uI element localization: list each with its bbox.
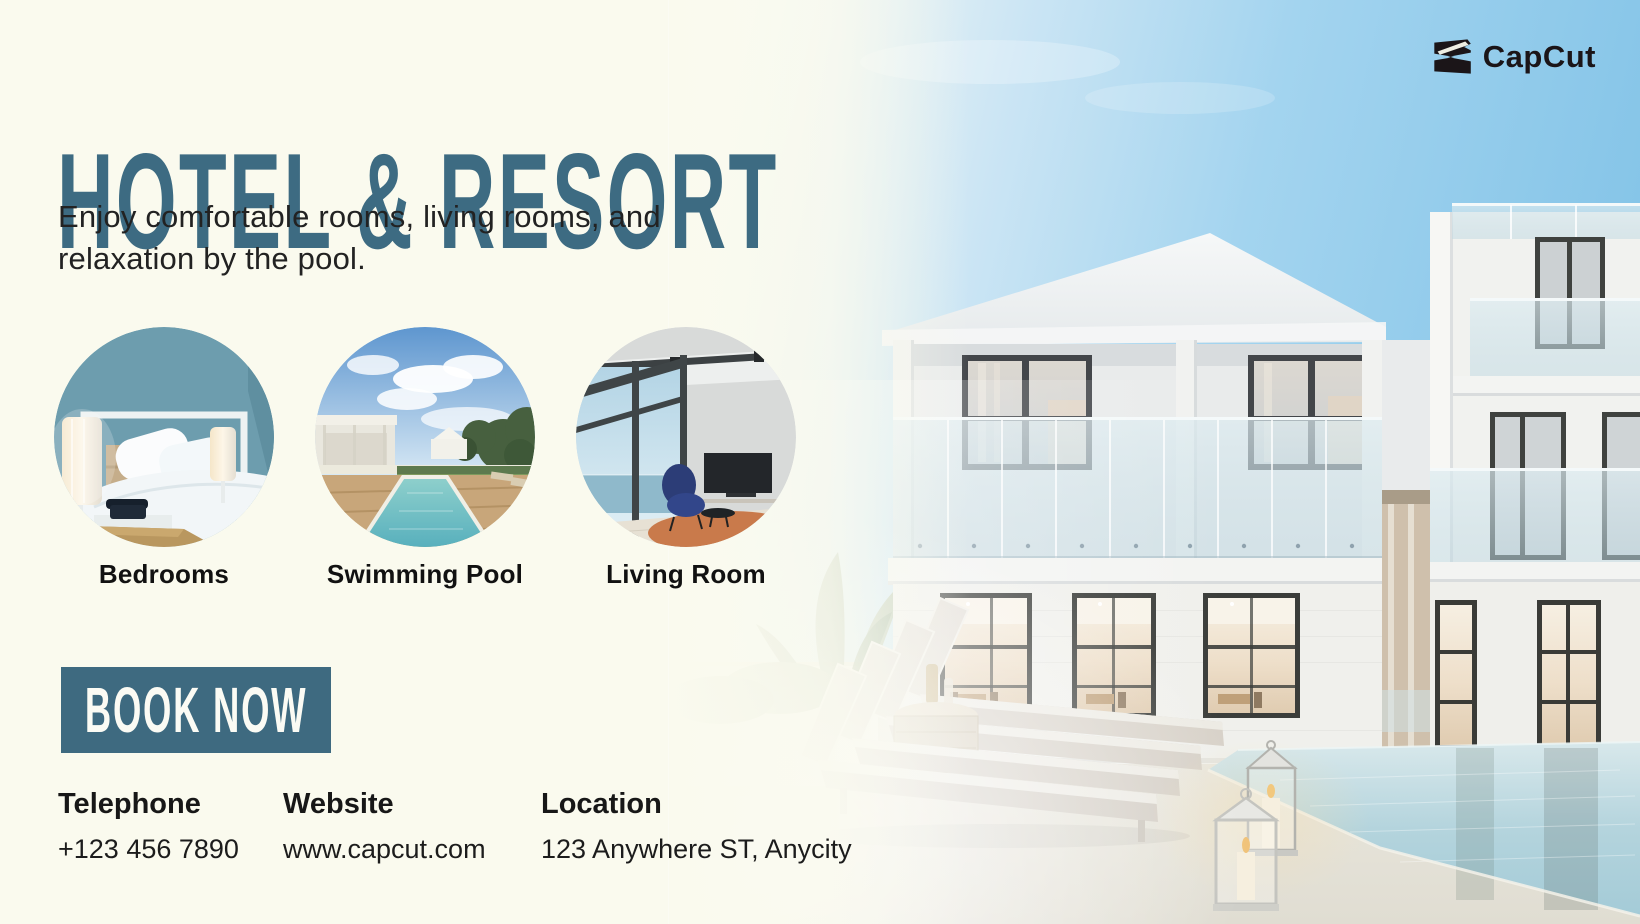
- hero-subtitle-line2: relaxation by the pool.: [58, 238, 661, 280]
- feature-bedrooms: Bedrooms: [54, 327, 274, 590]
- feature-label-living-room: Living Room: [576, 559, 796, 590]
- contact-website: Website www.capcut.com: [283, 788, 486, 865]
- resort-building-photo: [660, 0, 1640, 924]
- telephone-value[interactable]: +123 456 7890: [58, 834, 239, 865]
- website-value[interactable]: www.capcut.com: [283, 834, 486, 865]
- living-room-photo: [576, 327, 796, 547]
- telephone-heading: Telephone: [58, 788, 239, 820]
- book-now-button[interactable]: BOOK NOW: [61, 667, 331, 753]
- website-heading: Website: [283, 788, 486, 820]
- hero-subtitle: Enjoy comfortable rooms, living rooms, a…: [58, 196, 661, 280]
- hotel-resort-banner: CapCut HOTEL & RESORT Enjoy comfortable …: [0, 0, 1640, 924]
- capcut-logo-icon: [1431, 38, 1473, 76]
- book-now-label: BOOK NOW: [85, 673, 307, 747]
- feature-label-bedrooms: Bedrooms: [54, 559, 274, 590]
- feature-label-swimming-pool: Swimming Pool: [315, 559, 535, 590]
- hero-subtitle-line1: Enjoy comfortable rooms, living rooms, a…: [58, 196, 661, 238]
- contact-location: Location 123 Anywhere ST, Anycity: [541, 788, 852, 865]
- capcut-logo-text: CapCut: [1483, 39, 1596, 75]
- contact-telephone: Telephone +123 456 7890: [58, 788, 239, 865]
- location-heading: Location: [541, 788, 852, 820]
- bedroom-photo: [54, 327, 274, 547]
- location-value: 123 Anywhere ST, Anycity: [541, 834, 852, 865]
- capcut-logo: CapCut: [1431, 38, 1596, 76]
- feature-swimming-pool: Swimming Pool: [315, 327, 535, 590]
- feature-living-room: Living Room: [576, 327, 796, 590]
- swimming-pool-photo: [315, 327, 535, 547]
